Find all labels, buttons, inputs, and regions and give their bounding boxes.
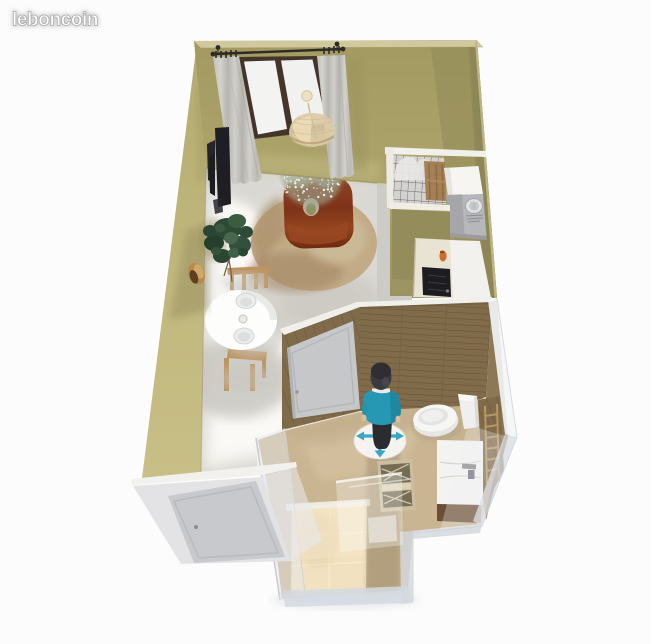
svg-text:leboncoin: leboncoin	[12, 10, 98, 31]
